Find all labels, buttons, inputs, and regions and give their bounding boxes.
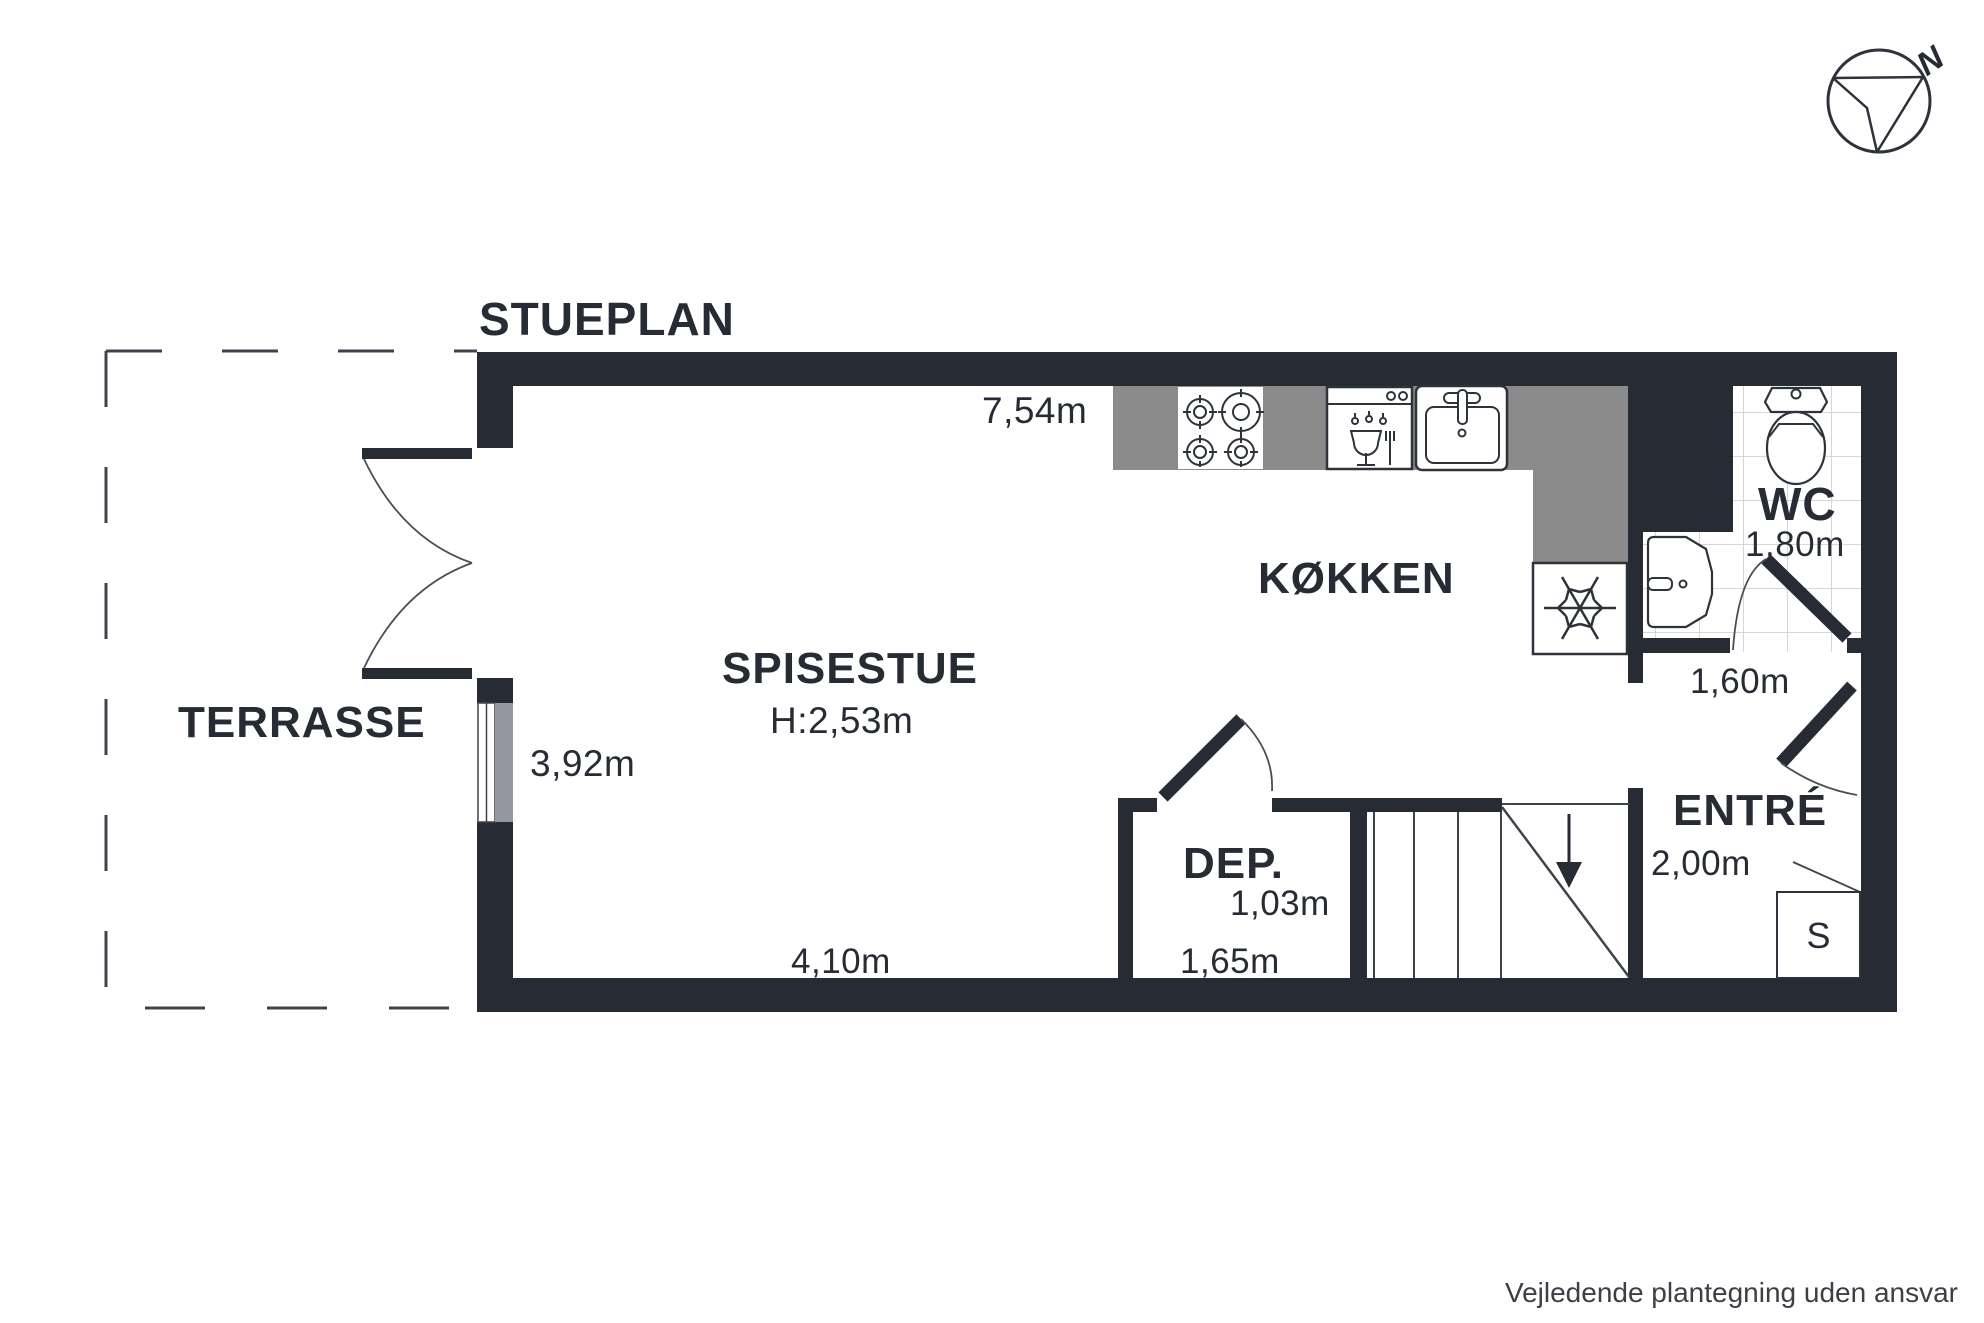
washbasin-icon bbox=[1648, 537, 1712, 627]
sink-icon bbox=[1416, 386, 1507, 470]
room-label-wc: WC bbox=[1758, 481, 1837, 527]
entre-door-leaf bbox=[1781, 686, 1852, 763]
wall-dep-top-left bbox=[1118, 798, 1157, 812]
wall-left-lower bbox=[477, 822, 513, 978]
wall-entre-left bbox=[1628, 788, 1643, 978]
footer-disclaimer: Vejledende plantegning uden ansvar bbox=[1505, 1279, 1958, 1307]
dim-dep-bottom: 1,65m bbox=[1180, 944, 1280, 979]
wall-wc-door-stub bbox=[1847, 638, 1861, 653]
terrace-door-leaf-bottom bbox=[362, 668, 472, 679]
toilet-icon bbox=[1765, 388, 1827, 484]
plan-title: STUEPLAN bbox=[479, 296, 735, 342]
dim-bottom: 4,10m bbox=[791, 944, 891, 979]
wall-dep-top-right bbox=[1272, 798, 1502, 812]
wall-left-upper bbox=[477, 352, 513, 448]
room-label-terrasse: TERRASSE bbox=[178, 701, 426, 745]
wall-bottom bbox=[477, 978, 1897, 1012]
wall-right bbox=[1861, 352, 1897, 1012]
wall-wc-bottom bbox=[1643, 638, 1730, 653]
dim-kitchen-top: 7,54m bbox=[982, 392, 1087, 429]
freezer-icon bbox=[1533, 563, 1627, 654]
dim-dep-width: 1,03m bbox=[1230, 886, 1330, 921]
room-label-dep: DEP. bbox=[1183, 842, 1284, 886]
dishwasher-icon bbox=[1327, 387, 1412, 469]
dep-door-leaf bbox=[1163, 719, 1241, 797]
stairs-down-arrow-icon bbox=[1556, 814, 1582, 888]
compass-icon bbox=[1828, 50, 1930, 152]
floor-plan-drawing bbox=[0, 0, 1984, 1323]
wall-dep-right bbox=[1350, 798, 1367, 978]
terrace-door-leaf-top bbox=[362, 448, 472, 459]
dim-wc-width: 1,80m bbox=[1745, 527, 1845, 562]
wall-kitchen-wc bbox=[1628, 386, 1733, 532]
closet-pointer-line bbox=[1793, 862, 1860, 892]
wall-wc-vestibule bbox=[1628, 532, 1643, 683]
room-label-kokken: KØKKEN bbox=[1258, 557, 1455, 601]
dim-entre-width: 2,00m bbox=[1651, 846, 1751, 881]
dim-ceiling-height: H:2,53m bbox=[770, 702, 913, 739]
wall-top bbox=[477, 352, 1897, 386]
wall-dep-left bbox=[1118, 798, 1133, 978]
wall-left-mid bbox=[477, 678, 513, 703]
stove-icon bbox=[1178, 387, 1264, 469]
room-label-entre: ENTRÉ bbox=[1673, 789, 1827, 833]
staircase bbox=[1374, 804, 1630, 978]
dim-left-side: 3,92m bbox=[530, 745, 635, 782]
window bbox=[478, 703, 513, 822]
closet-label: S bbox=[1777, 918, 1860, 954]
dim-wc-door: 1,60m bbox=[1690, 664, 1790, 699]
room-label-spisestue: SPISESTUE bbox=[722, 647, 978, 691]
